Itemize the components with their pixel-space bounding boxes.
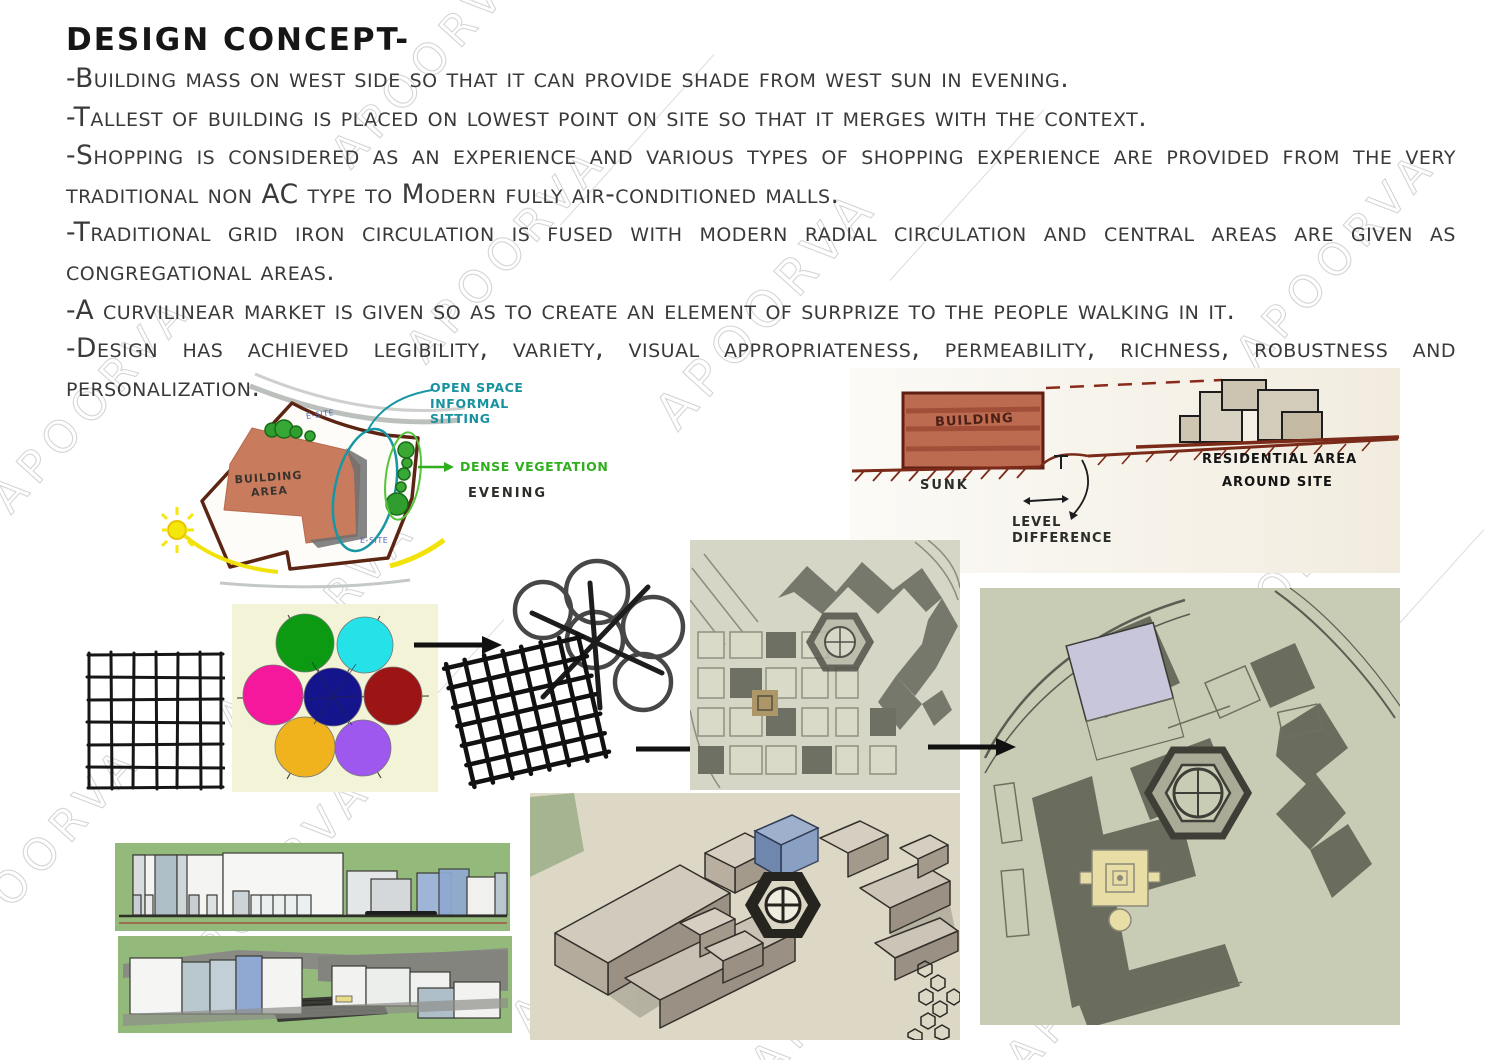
- grid-iron-drawing: [85, 648, 225, 793]
- site-note: E-SITE: [360, 536, 388, 546]
- massing-model-drawing: [530, 793, 960, 1040]
- massing-model-view: [530, 793, 960, 1044]
- elevation-view-2: [118, 936, 512, 1037]
- concept-bullet-list: -Building mass on west side so that it c…: [66, 60, 1456, 407]
- bullet-item: -Building mass on west side so that it c…: [66, 60, 1456, 99]
- radial-circles-drawing: [232, 604, 438, 792]
- sunk-label: SUNK: [920, 478, 969, 494]
- page-title: DESIGN CONCEPT-: [66, 22, 410, 58]
- residential-area-label: RESIDENTIAL AREA: [1202, 452, 1357, 468]
- radial-circles-diagram: [232, 604, 438, 796]
- flow-arrow: [412, 634, 504, 660]
- elevation-1-drawing: [115, 843, 510, 931]
- design-concept-sheet: APOORVA APOORVA APOORVA APOORVA APOORVA …: [0, 0, 1500, 1060]
- bullet-item: -A curvilinear market is given so as to …: [66, 292, 1456, 331]
- grid-iron-diagram: [85, 648, 225, 797]
- level-difference-label: LEVEL DIFFERENCE: [1012, 515, 1132, 548]
- around-site-label: AROUND SITE: [1222, 475, 1333, 491]
- elevation-view-1: [115, 843, 510, 935]
- bullet-item: -Traditional grid iron circulation is fu…: [66, 214, 1456, 291]
- bullet-item: -Tallest of building is placed on lowest…: [66, 99, 1456, 138]
- concept-plan-sketch: [690, 540, 960, 794]
- building-area-label: BUILDING AREA: [229, 468, 309, 501]
- evening-label: EVENING: [468, 486, 547, 502]
- flow-arrow: [926, 736, 1018, 762]
- concept-plan-drawing: [690, 540, 960, 790]
- dense-vegetation-label: DENSE VEGETATION: [460, 459, 630, 475]
- bullet-item: -Shopping is considered as an experience…: [66, 137, 1456, 214]
- final-plan-sketch: [980, 588, 1400, 1029]
- elevation-2-drawing: [118, 936, 512, 1033]
- final-plan-drawing: [980, 588, 1400, 1025]
- bullet-item: -Design has achieved legibility, variety…: [66, 330, 1456, 407]
